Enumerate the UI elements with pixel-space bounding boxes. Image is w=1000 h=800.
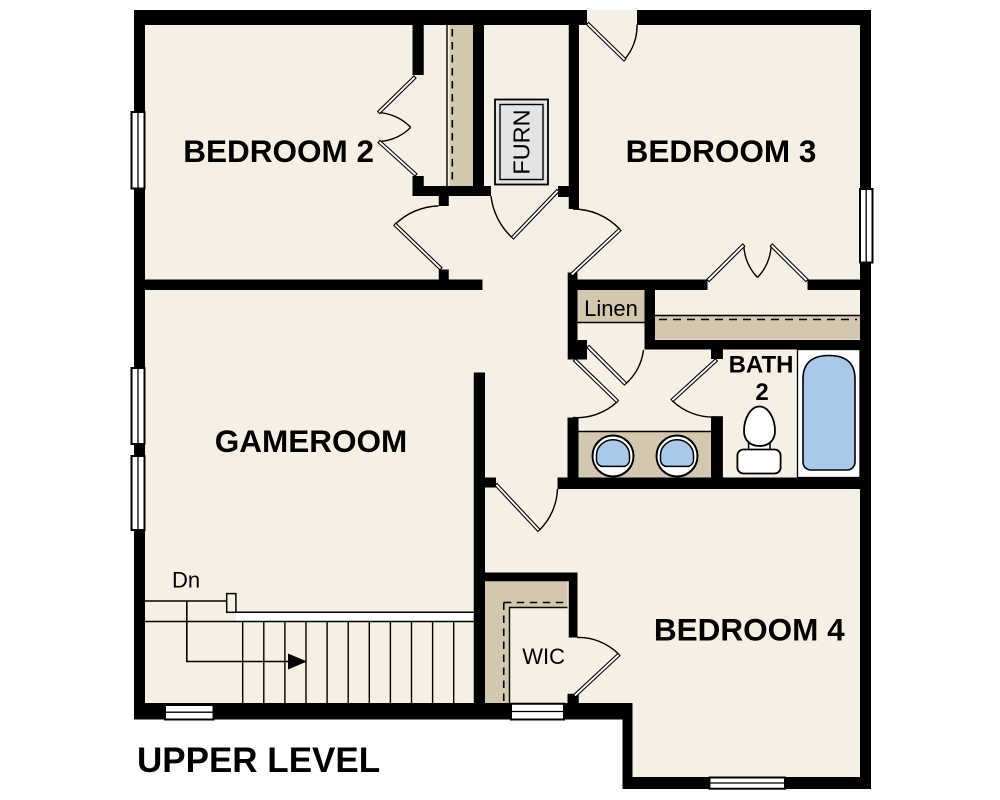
svg-text:2: 2: [755, 379, 768, 406]
svg-text:Linen: Linen: [584, 296, 638, 321]
svg-text:WIC: WIC: [522, 644, 565, 669]
svg-text:BEDROOM 2: BEDROOM 2: [183, 133, 374, 169]
svg-text:GAMEROOM: GAMEROOM: [215, 423, 408, 459]
svg-text:FURN: FURN: [509, 109, 535, 174]
svg-text:UPPER LEVEL: UPPER LEVEL: [137, 741, 380, 780]
svg-text:BEDROOM 4: BEDROOM 4: [654, 612, 845, 648]
svg-text:BEDROOM 3: BEDROOM 3: [626, 133, 817, 169]
svg-text:BATH: BATH: [729, 352, 794, 379]
svg-text:Dn: Dn: [172, 568, 200, 593]
